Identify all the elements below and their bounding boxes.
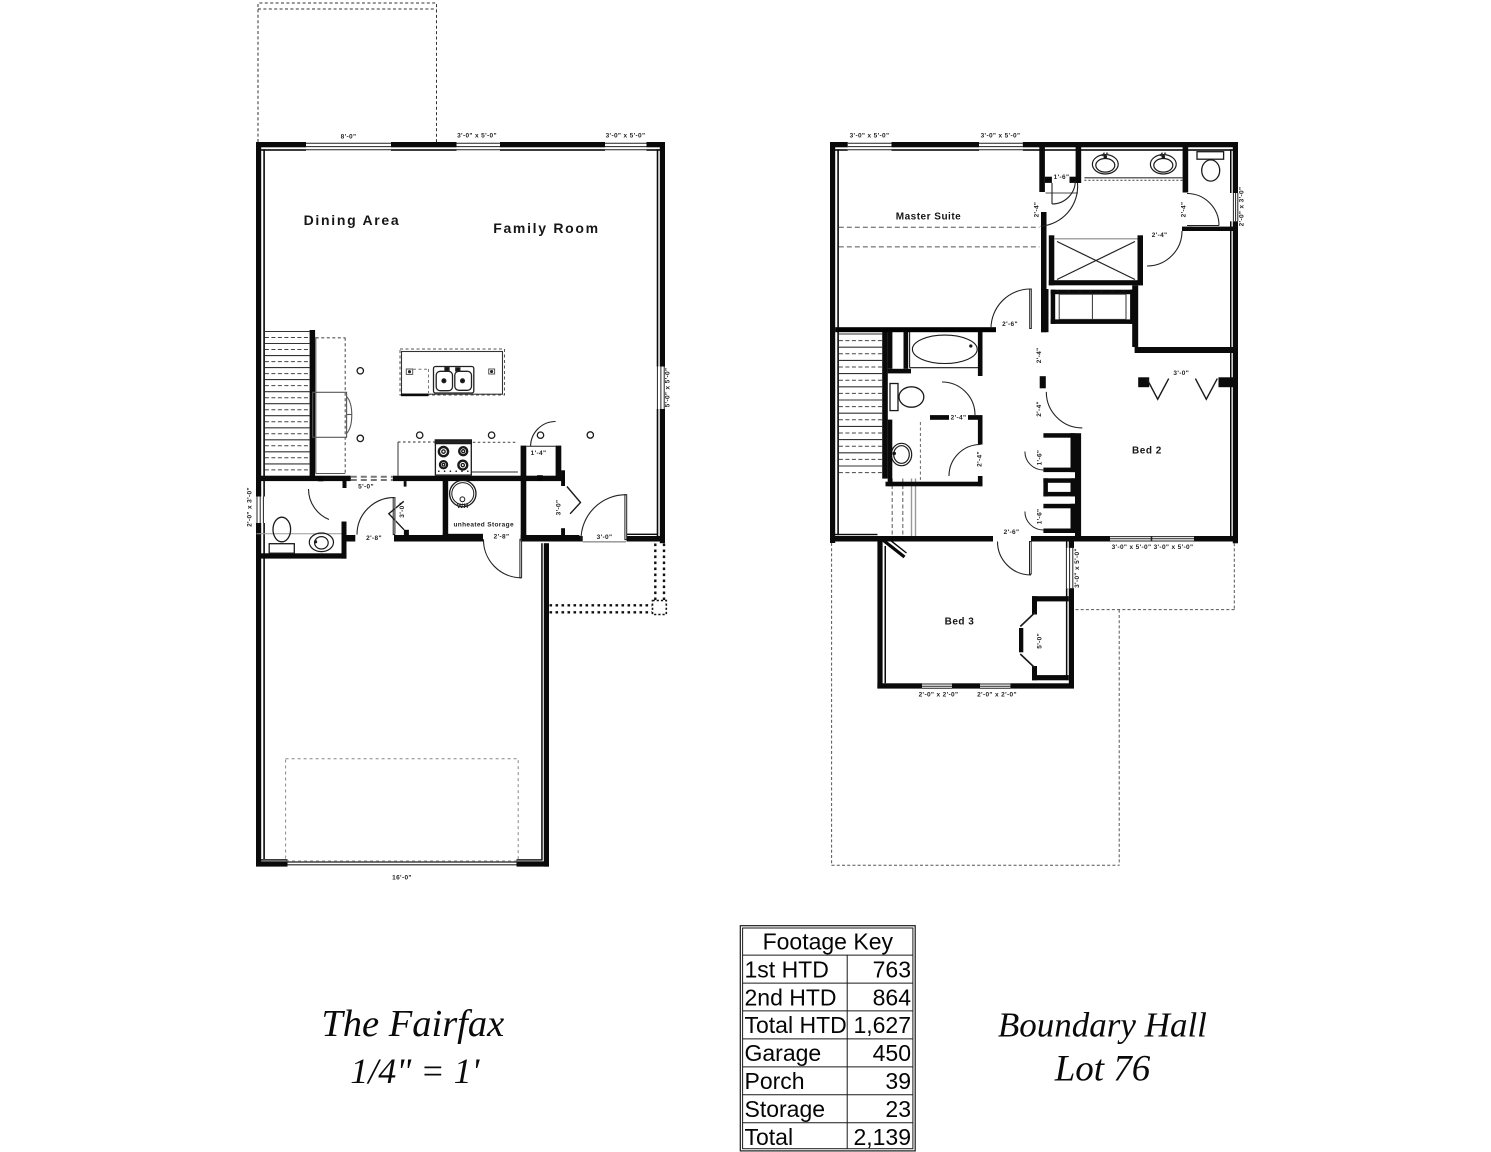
svg-text:3'-0" x 5'-0" 3'-0" x 5'-0": 3'-0" x 5'-0" 3'-0" x 5'-0" xyxy=(1112,544,1194,551)
svg-text:unheated Storage: unheated Storage xyxy=(453,522,514,529)
svg-text:1'-6": 1'-6" xyxy=(1037,450,1044,466)
svg-text:3'-0" x 5'-0": 3'-0" x 5'-0" xyxy=(981,133,1021,140)
svg-text:1'-4": 1'-4" xyxy=(531,450,547,457)
svg-text:2'-4": 2'-4" xyxy=(951,415,967,422)
svg-text:Master Suite: Master Suite xyxy=(896,212,961,223)
svg-text:3'-0" x 5'-0": 3'-0" x 5'-0" xyxy=(606,133,646,140)
svg-text:39: 39 xyxy=(885,1068,911,1094)
svg-text:23: 23 xyxy=(885,1096,911,1122)
svg-text:2'-0" x 2'-0": 2'-0" x 2'-0" xyxy=(977,692,1017,699)
svg-text:4": 4" xyxy=(1160,152,1167,159)
svg-text:Lot 76: Lot 76 xyxy=(1054,1049,1151,1090)
svg-text:Total: Total xyxy=(745,1124,794,1150)
svg-text:2'-4": 2'-4" xyxy=(1034,202,1041,218)
svg-text:Family Room: Family Room xyxy=(493,220,600,236)
svg-text:5'-0": 5'-0" xyxy=(1036,633,1043,649)
svg-text:5'-0" x 5'-0": 5'-0" x 5'-0" xyxy=(665,368,672,408)
svg-text:2,139: 2,139 xyxy=(853,1124,911,1150)
svg-text:8'-0": 8'-0" xyxy=(341,134,357,141)
svg-text:3'-0" x 5'-0": 3'-0" x 5'-0" xyxy=(850,133,890,140)
svg-text:Bed 2: Bed 2 xyxy=(1132,446,1162,457)
svg-text:2'-0" x 3'-0": 2'-0" x 3'-0" xyxy=(247,487,254,527)
svg-text:WH: WH xyxy=(457,503,469,510)
svg-text:3'-0": 3'-0" xyxy=(1173,370,1189,377)
svg-text:4": 4" xyxy=(1102,152,1109,159)
svg-text:Footage Key: Footage Key xyxy=(763,929,894,955)
svg-text:2'-6": 2'-6" xyxy=(1002,321,1018,328)
svg-text:3'-0" x 5'-0": 3'-0" x 5'-0" xyxy=(457,133,497,140)
svg-text:Garage: Garage xyxy=(745,1040,822,1066)
svg-text:3'-0" x 5'-0": 3'-0" x 5'-0" xyxy=(1074,548,1081,588)
svg-text:Storage: Storage xyxy=(745,1096,826,1122)
svg-text:2'-4": 2'-4" xyxy=(1180,202,1187,218)
svg-text:864: 864 xyxy=(873,984,912,1010)
svg-text:3'-0": 3'-0" xyxy=(597,534,613,541)
svg-text:16'-0": 16'-0" xyxy=(392,875,412,882)
svg-text:1/4" = 1': 1/4" = 1' xyxy=(350,1051,480,1091)
svg-text:3'-0": 3'-0" xyxy=(399,502,406,518)
svg-text:2'-0" x 2'-0": 2'-0" x 2'-0" xyxy=(919,692,959,699)
svg-text:1'-6": 1'-6" xyxy=(1037,509,1044,525)
svg-text:The Fairfax: The Fairfax xyxy=(321,1003,504,1045)
svg-text:Total HTD: Total HTD xyxy=(745,1012,847,1038)
svg-text:2'-8": 2'-8" xyxy=(494,534,510,541)
svg-text:2'-0" x 3'-0": 2'-0" x 3'-0" xyxy=(1239,187,1246,227)
svg-text:2'-8": 2'-8" xyxy=(366,535,382,542)
svg-text:1,627: 1,627 xyxy=(853,1012,911,1038)
svg-text:2nd HTD: 2nd HTD xyxy=(745,984,837,1010)
svg-text:Dining Area: Dining Area xyxy=(304,212,401,228)
svg-text:Porch: Porch xyxy=(745,1068,805,1094)
svg-text:Bed 3: Bed 3 xyxy=(945,617,975,628)
svg-text:2'-4": 2'-4" xyxy=(1152,232,1168,239)
svg-text:5'-0": 5'-0" xyxy=(358,484,374,491)
svg-text:2'-4": 2'-4" xyxy=(1036,401,1043,417)
svg-text:Boundary Hall: Boundary Hall xyxy=(998,1006,1207,1045)
svg-text:450: 450 xyxy=(873,1040,911,1066)
svg-text:2'-4": 2'-4" xyxy=(977,451,984,467)
svg-text:2'-4": 2'-4" xyxy=(1036,347,1043,363)
svg-text:2'-6": 2'-6" xyxy=(1004,529,1020,536)
svg-text:1st HTD: 1st HTD xyxy=(745,957,829,983)
svg-text:1'-6": 1'-6" xyxy=(1054,174,1070,181)
svg-text:763: 763 xyxy=(873,957,911,983)
svg-text:3'-0": 3'-0" xyxy=(556,500,563,516)
